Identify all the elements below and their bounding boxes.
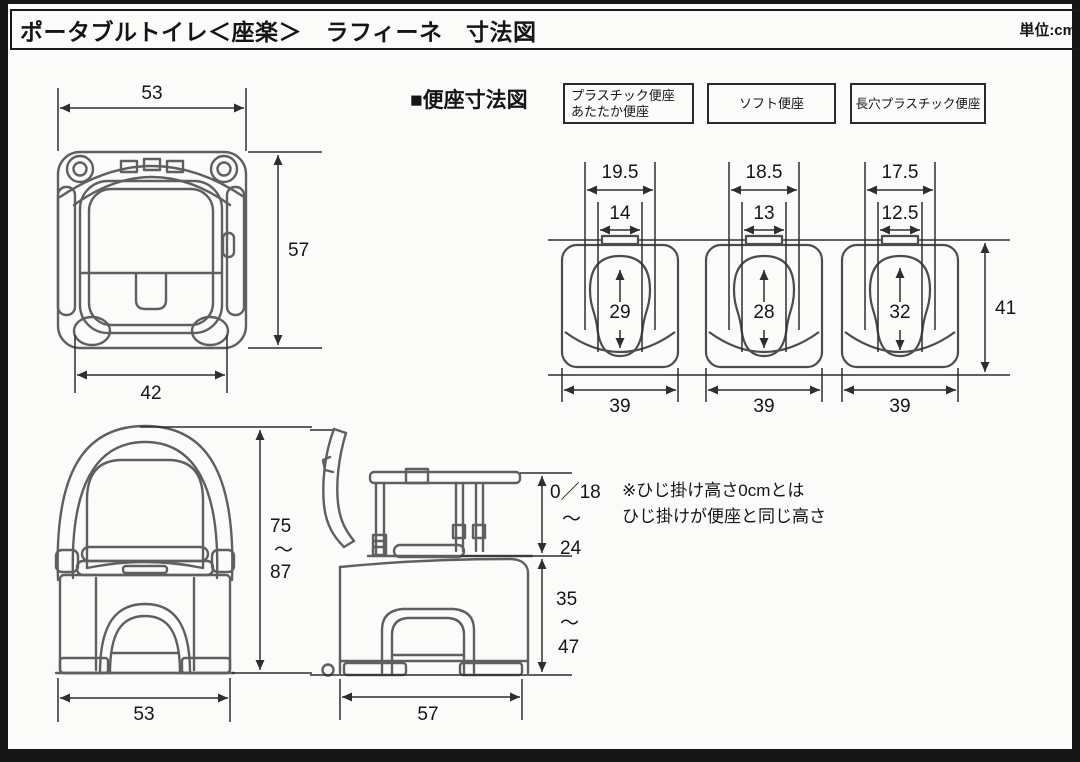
seat-diagram-soft: 18.5 13 28 39	[706, 162, 822, 417]
seat1-outer-width-label: 19.5	[602, 162, 639, 183]
seat-height-min-label: 35	[556, 589, 577, 610]
seat-type-label: あたたか便座	[571, 104, 692, 120]
unit-label: 単位:cm	[1019, 19, 1076, 40]
seat-section-heading: ■便座寸法図	[410, 84, 528, 114]
frame-bar-left	[0, 0, 8, 762]
seat-diagram-longhole: 17.5 12.5 32 39	[842, 162, 958, 417]
armrest-height-tilde: ～	[562, 509, 581, 530]
seat-dimension-diagram: 19.5 14 29 39 18.5 13 28	[545, 140, 1045, 430]
front-view-height-tilde: ～	[274, 540, 293, 561]
front-view-width-label: 53	[133, 704, 154, 725]
armrest-note-line2: ひじ掛けが便座と同じ高さ	[622, 504, 826, 530]
front-view-height-min-label: 75	[270, 516, 291, 537]
seat-type-label: ソフト便座	[739, 96, 804, 112]
seat-height-max-label: 47	[558, 637, 579, 658]
top-view-seat-width-label: 42	[140, 383, 161, 404]
top-view-diagram: 53 57 42	[20, 75, 330, 410]
top-view-width-label: 53	[141, 83, 162, 104]
title-box: ポータブルトイレ＜座楽＞ ラフィーネ 寸法図 単位:cm	[10, 9, 1080, 50]
front-view-diagram: 75 ～ 87 53	[20, 420, 320, 732]
frame-bar-top	[0, 0, 1080, 4]
seat-type-box-longhole: 長穴プラスチック便座	[850, 83, 986, 124]
seat-overall-depth-dimension: 41	[985, 243, 1016, 372]
seat2-outer-width-label: 18.5	[746, 162, 783, 183]
dimension-sheet: ポータブルトイレ＜座楽＞ ラフィーネ 寸法図 単位:cm ■便座寸法図 プラスチ…	[0, 0, 1080, 762]
page-title: ポータブルトイレ＜座楽＞ ラフィーネ 寸法図	[20, 13, 537, 47]
side-view-depth-label: 57	[417, 704, 438, 725]
top-view-width-dimension: 53	[58, 83, 246, 151]
side-view-depth-dimension: 57	[340, 679, 522, 725]
seat-type-box-soft: ソフト便座	[707, 83, 836, 124]
toilet-front-outline	[56, 426, 234, 673]
top-view-depth-label: 57	[288, 240, 309, 261]
seat1-base-width-label: 39	[609, 396, 630, 417]
top-view-depth-dimension: 57	[248, 152, 322, 348]
frame-bar-bottom	[0, 749, 1080, 762]
seat2-hole-length-label: 28	[753, 302, 774, 323]
front-view-height-max-label: 87	[270, 562, 291, 583]
frame-bar-right	[1072, 0, 1080, 762]
seat-height-tilde: ～	[560, 613, 579, 634]
seat-overall-depth-label: 41	[995, 298, 1016, 319]
armrest-note-line1: ※ひじ掛け高さ0cmとは	[622, 478, 826, 504]
front-view-width-dimension: 53	[58, 678, 230, 725]
seat-type-box-plastic: プラスチック便座 あたたか便座	[563, 83, 694, 124]
seat3-hole-length-label: 32	[889, 302, 910, 323]
seat-type-label: プラスチック便座	[571, 88, 692, 104]
side-view-diagram: 0／18 ～ 24 35 ～ 47 57	[310, 425, 645, 725]
seat2-inner-width-label: 13	[753, 203, 774, 224]
seat3-inner-width-label: 12.5	[882, 203, 919, 224]
seat2-base-width-label: 39	[753, 396, 774, 417]
toilet-side-outline	[310, 429, 532, 676]
armrest-note: ※ひじ掛け高さ0cmとは ひじ掛けが便座と同じ高さ	[622, 478, 826, 530]
seat-type-label: 長穴プラスチック便座	[856, 96, 981, 112]
armrest-height-min-label: 0／18	[550, 481, 601, 503]
side-view-armrest-height-dimension: 0／18 ～ 24	[460, 473, 601, 559]
armrest-height-max-label: 24	[560, 538, 582, 559]
seat3-base-width-label: 39	[889, 396, 910, 417]
seat3-outer-width-label: 17.5	[882, 162, 919, 183]
seat-diagram-plastic: 19.5 14 29 39	[562, 162, 678, 417]
seat1-inner-width-label: 14	[609, 203, 631, 224]
toilet-top-outline	[58, 152, 246, 348]
seat1-hole-length-label: 29	[609, 302, 630, 323]
